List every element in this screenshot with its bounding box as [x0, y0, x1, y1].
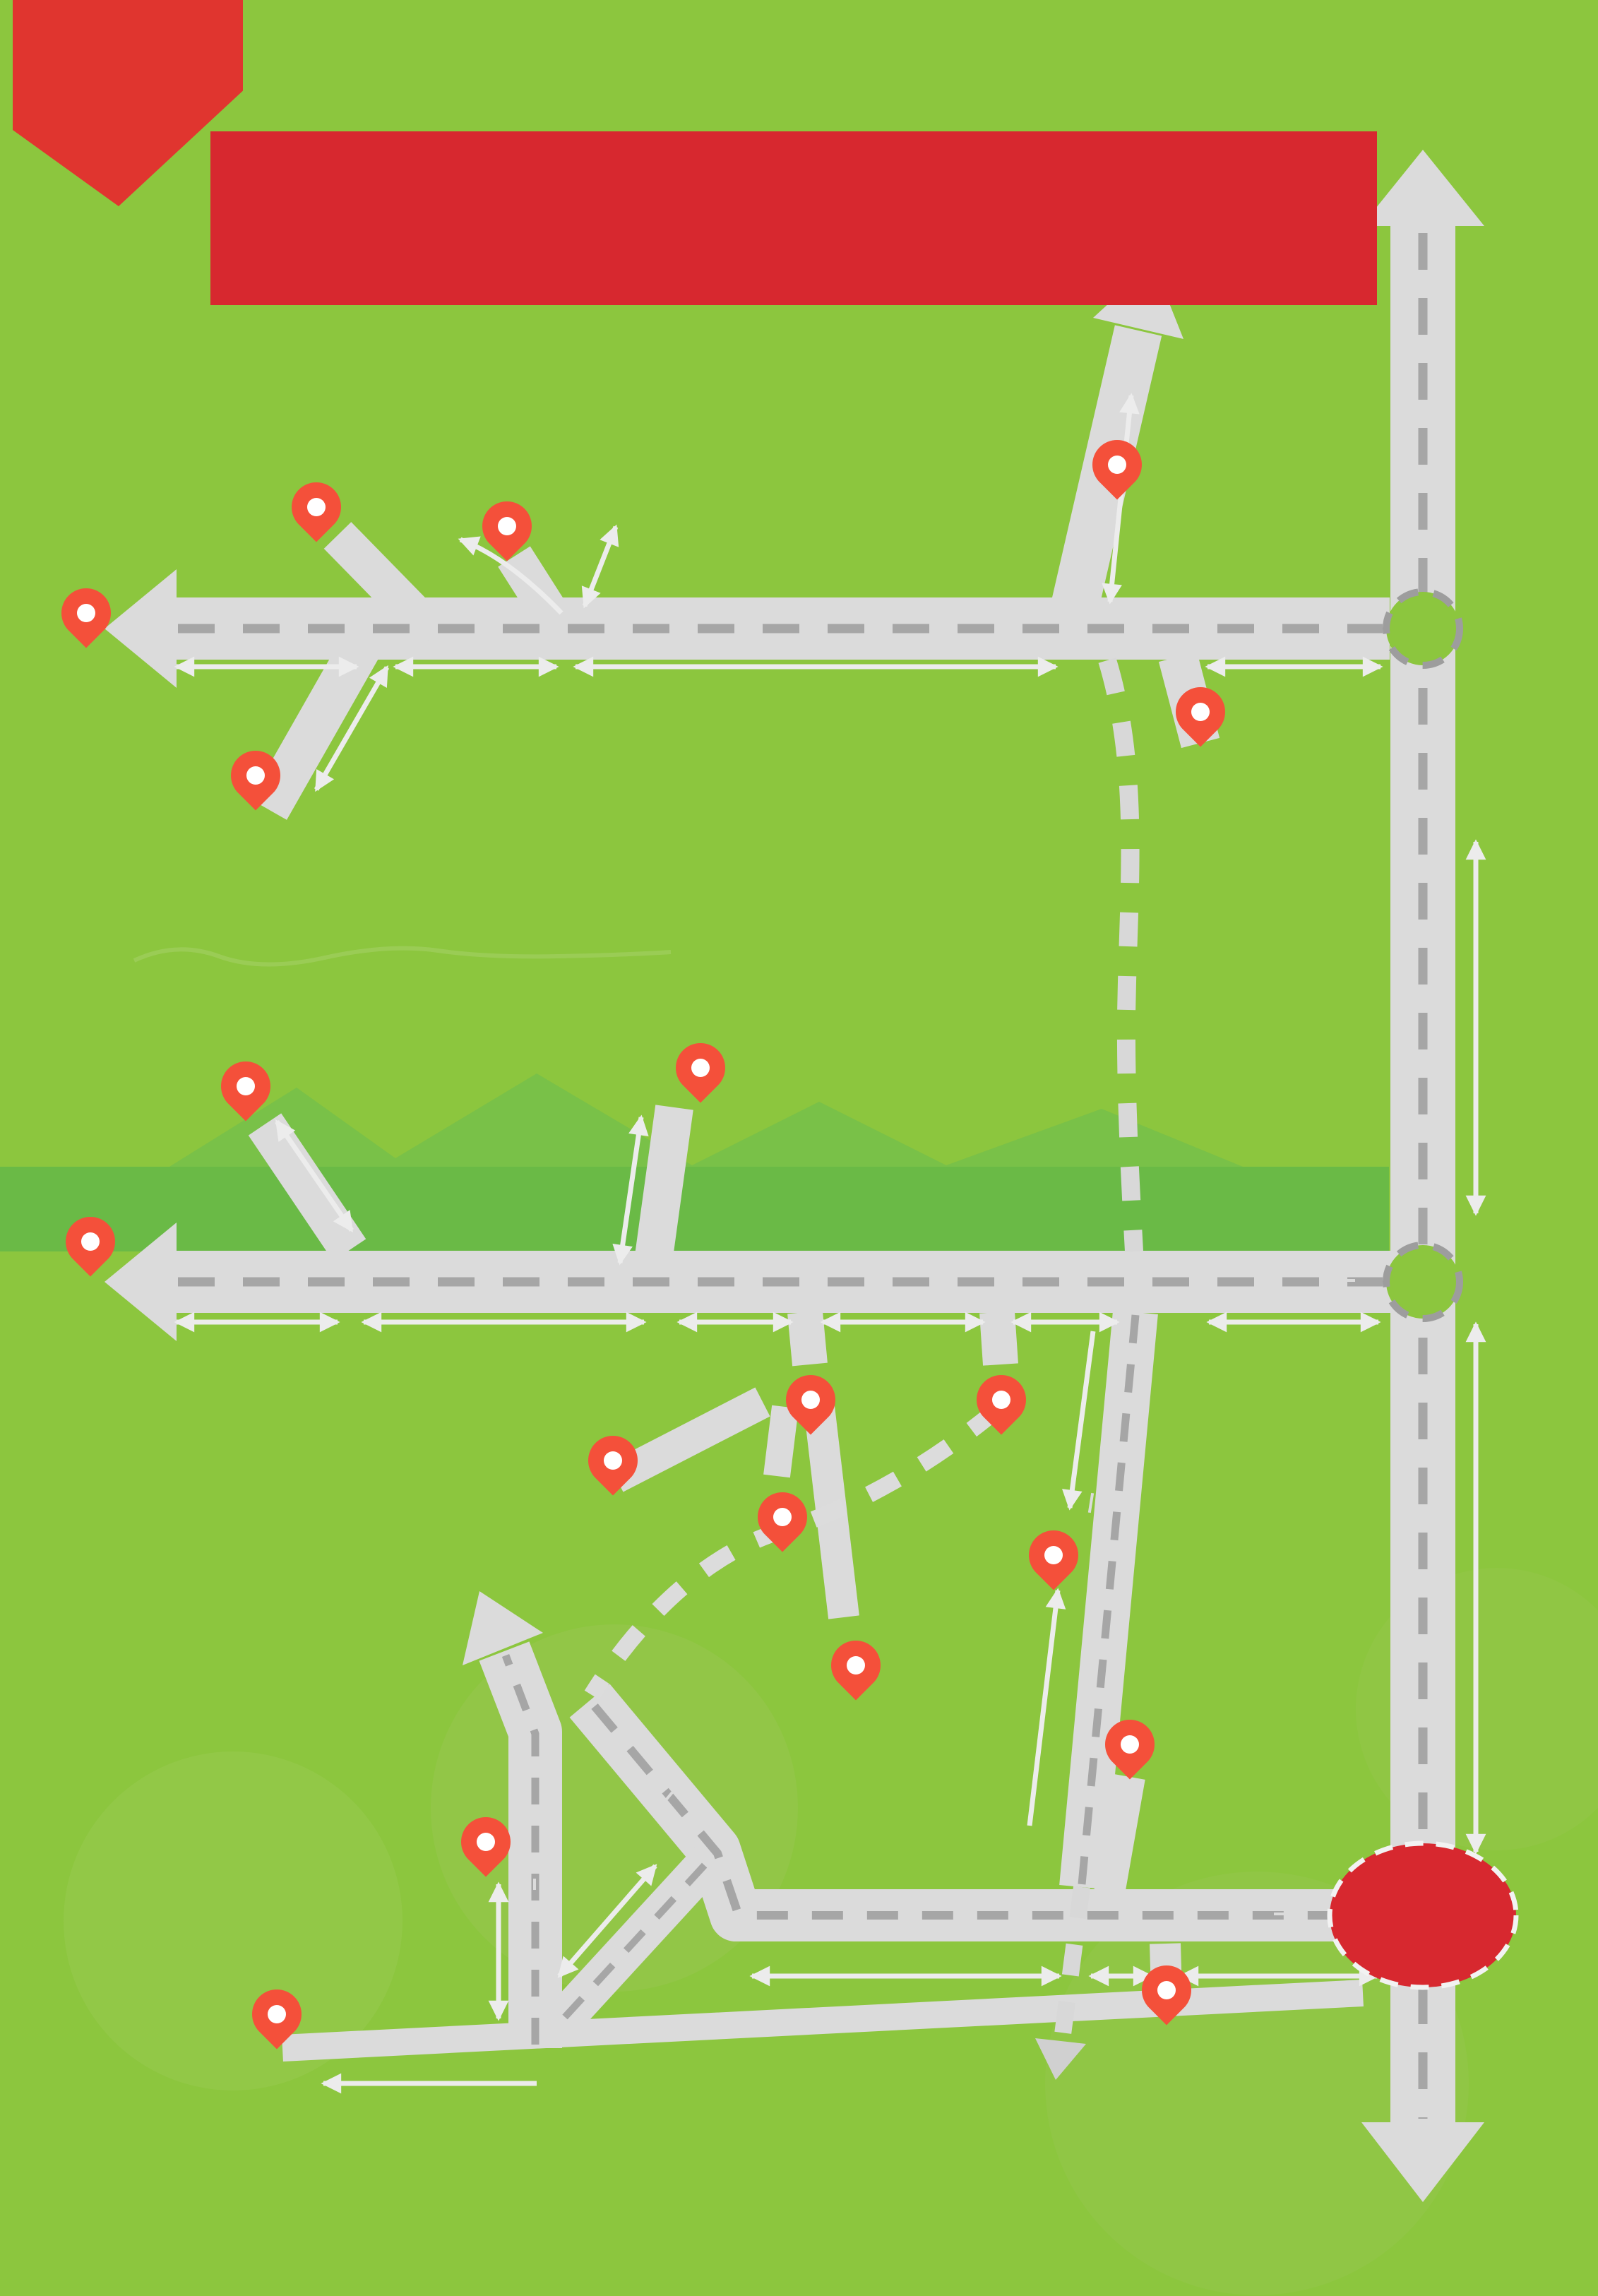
road-label-hcm-bottom [533, 1879, 536, 1890]
road-label-ql7 [1335, 1279, 1355, 1282]
map-canvas [0, 0, 1598, 2296]
road-label-ql48a [1326, 626, 1346, 629]
roundabout-yen-ly [1386, 592, 1460, 665]
road-label-ql46a [1274, 1913, 1294, 1915]
background-decor [0, 948, 1598, 2295]
map-graphics [0, 0, 1598, 2296]
title-banner [210, 131, 1377, 305]
roundabout-dien-chau [1386, 1245, 1460, 1319]
tp-vinh-node [1330, 1843, 1516, 1987]
road-label-ql1a [1420, 1445, 1423, 1465]
